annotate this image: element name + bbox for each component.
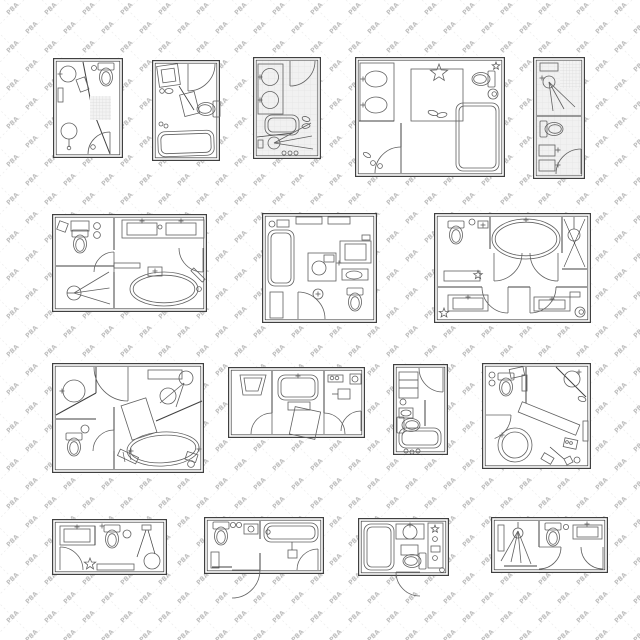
watermark-text: PBA [214, 400, 229, 415]
watermark-text: PBA [632, 134, 640, 149]
watermark-text: PBA [328, 628, 343, 640]
watermark-text: PBA [632, 96, 640, 111]
watermark-text: PBA [632, 552, 640, 567]
watermark-text: PBA [309, 343, 324, 358]
watermark-text: PBA [632, 20, 640, 35]
watermark-text: PBA [518, 628, 533, 640]
watermark-text: PBA [613, 343, 628, 358]
watermark-text: PBA [214, 362, 229, 377]
watermark-text: PBA [556, 628, 571, 640]
watermark-text: PBA [252, 438, 267, 453]
watermark-text: PBA [119, 343, 134, 358]
watermark-text: PBA [214, 438, 229, 453]
watermark-text: PBA [499, 343, 514, 358]
floor-plan-05 [534, 58, 585, 179]
floor-plan-04 [356, 58, 505, 177]
watermark-text: PBA [366, 438, 381, 453]
watermark-text: PBA [594, 362, 609, 377]
floor-plan-07 [263, 214, 377, 323]
watermark-text: PBA [290, 438, 305, 453]
watermark-text: PBA [366, 628, 381, 640]
watermark-text: PBA [537, 343, 552, 358]
watermark-text: PBA [461, 381, 476, 396]
watermark-text: PBA [632, 628, 640, 640]
watermark-text: PBA [252, 628, 267, 640]
watermark-text: PBA [632, 438, 640, 453]
watermark-text: PBA [157, 343, 172, 358]
watermark-text: PBA [613, 419, 628, 434]
floor-plan-03 [254, 58, 321, 159]
watermark-text: PBA [366, 400, 381, 415]
watermark-text: PBA [594, 400, 609, 415]
watermark-text: PBA [461, 419, 476, 434]
watermark-text: PBA [233, 343, 248, 358]
watermark-text: PBA [423, 343, 438, 358]
watermark-text: PBA [5, 419, 20, 434]
floor-plan-15 [359, 519, 449, 596]
watermark-text: PBA [632, 590, 640, 605]
watermark-text: PBA [632, 476, 640, 491]
watermark-text: PBA [632, 286, 640, 301]
watermark-text: PBA [480, 628, 495, 640]
watermark-text: PBA [385, 343, 400, 358]
watermark-text: PBA [632, 248, 640, 263]
watermark-text: PBA [271, 343, 286, 358]
watermark-text: PBA [62, 628, 77, 640]
watermark-text: PBA [575, 343, 590, 358]
watermark-text: PBA [214, 628, 229, 640]
floor-plan-16 [492, 518, 608, 573]
watermark-text: PBA [24, 362, 39, 377]
floor-plan-14 [205, 518, 324, 598]
floor-plan-10 [229, 368, 365, 440]
watermark-text: PBA [632, 514, 640, 529]
watermark-text: PBA [366, 362, 381, 377]
watermark-text: PBA [632, 324, 640, 339]
watermark-text: PBA [347, 343, 362, 358]
watermark-text: PBA [613, 381, 628, 396]
watermark-text: PBA [24, 400, 39, 415]
watermark-text: PBA [632, 400, 640, 415]
watermark-text: PBA [5, 343, 20, 358]
watermark-text: PBA [138, 628, 153, 640]
floor-plan-09 [53, 364, 204, 473]
asset-preview-sheet: PBAPBAPBAPBAPBAPBAPBAPBAPBAPBAPBAPBAPBAP… [0, 0, 640, 640]
watermark-text: PBA [404, 628, 419, 640]
watermark-text: PBA [290, 628, 305, 640]
watermark-text: PBA [632, 210, 640, 225]
watermark-text: PBA [43, 343, 58, 358]
floor-plan-13 [53, 520, 167, 575]
watermark-text: PBA [632, 172, 640, 187]
watermark-text: PBA [328, 438, 343, 453]
watermark-text: PBA [5, 381, 20, 396]
watermark-text: PBA [461, 343, 476, 358]
floor-plan-12 [483, 364, 591, 469]
watermark-text: PBA [24, 438, 39, 453]
watermark-text: PBA [442, 628, 457, 640]
floor-plan-02 [153, 61, 220, 161]
floor-plans-illustration: PBAPBAPBAPBAPBAPBAPBAPBAPBAPBAPBAPBAPBAP… [0, 0, 640, 640]
watermark-text: PBA [81, 343, 96, 358]
watermark-text: PBA [632, 362, 640, 377]
watermark-text: PBA [195, 343, 210, 358]
watermark-text: PBA [632, 58, 640, 73]
watermark-text: PBA [100, 628, 115, 640]
floor-plan-01 [54, 59, 123, 158]
watermark-text: PBA [24, 628, 39, 640]
watermark-text: PBA [176, 628, 191, 640]
watermark-text: PBA [594, 628, 609, 640]
watermark-text: PBA [594, 438, 609, 453]
floor-plan-06 [53, 215, 207, 312]
floor-plan-11 [394, 365, 448, 455]
floor-plan-08 [435, 214, 591, 323]
